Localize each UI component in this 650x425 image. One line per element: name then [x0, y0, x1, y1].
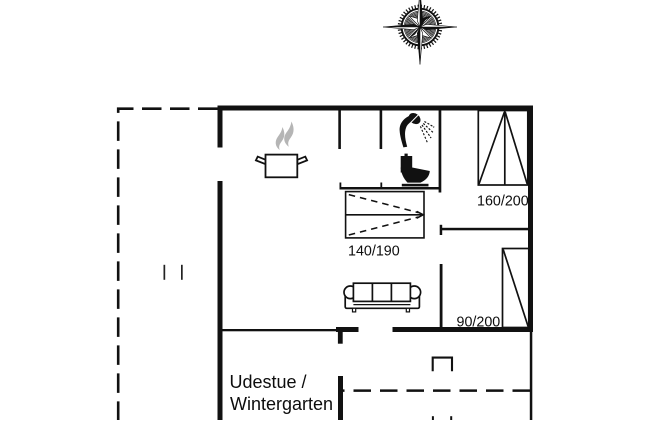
- svg-text:160/200: 160/200: [477, 193, 529, 209]
- svg-text:90/200: 90/200: [457, 314, 501, 330]
- svg-text:Wintergarten: Wintergarten: [230, 394, 333, 414]
- svg-text:140/190: 140/190: [348, 243, 400, 259]
- svg-text:Udestue /: Udestue /: [230, 372, 307, 392]
